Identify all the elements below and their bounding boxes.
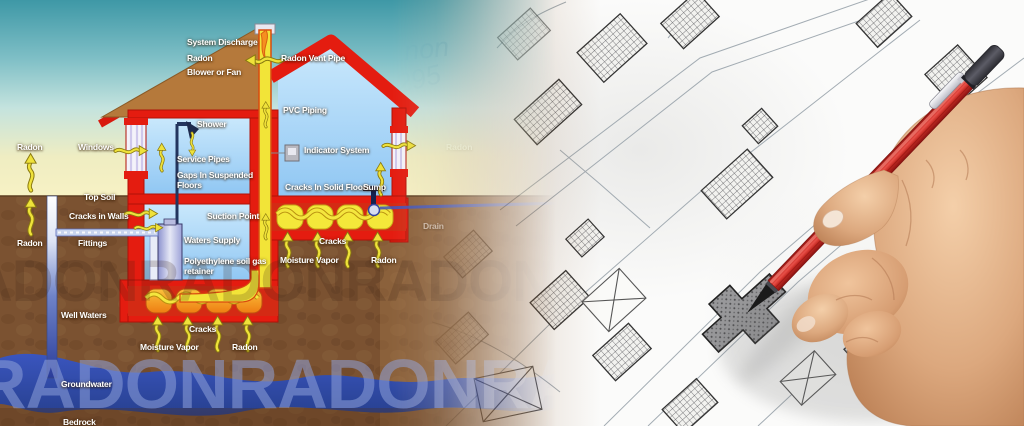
- radon-diagram-and-cadastral-map-scene: non 295 Radon: [0, 0, 1024, 426]
- pencil-cap: [962, 43, 1006, 88]
- hand-holding-pencil: [0, 0, 1024, 426]
